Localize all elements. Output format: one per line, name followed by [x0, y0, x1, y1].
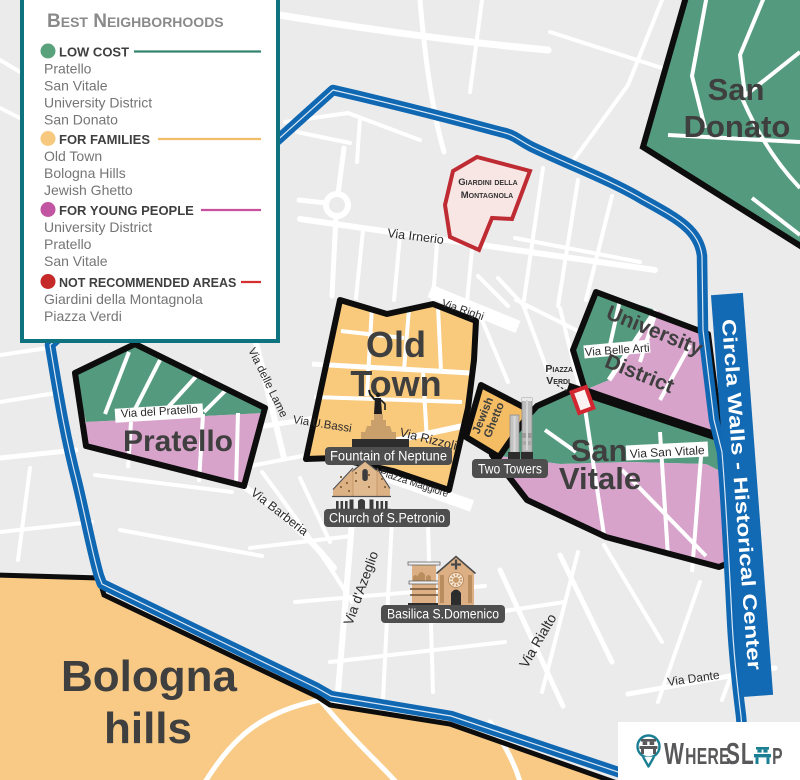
- svg-text:San Donato: San Donato: [44, 112, 118, 128]
- svg-text:San Vitale: San Vitale: [44, 253, 108, 269]
- svg-text:Church of S.Petronio: Church of S.Petronio: [329, 511, 445, 526]
- svg-text:Basilica S.Domenico: Basilica S.Domenico: [387, 606, 499, 622]
- svg-text:Piazza: Piazza: [545, 363, 573, 375]
- svg-text:Bologna: Bologna: [61, 652, 238, 701]
- svg-text:Old Town: Old Town: [44, 148, 102, 164]
- svg-text:San Vitale: San Vitale: [44, 78, 108, 94]
- svg-text:L: L: [741, 736, 754, 771]
- svg-text:hills: hills: [104, 704, 192, 753]
- svg-text:P: P: [772, 744, 782, 770]
- svg-text:FOR FAMILIES: FOR FAMILIES: [59, 132, 150, 147]
- svg-text:FOR YOUNG PEOPLE: FOR YOUNG PEOPLE: [59, 203, 194, 218]
- svg-text:W: W: [664, 736, 684, 771]
- svg-text:Fountain of Neptune: Fountain of Neptune: [330, 449, 447, 464]
- svg-text:Giardini della: Giardini della: [458, 177, 517, 188]
- svg-text:Old: Old: [366, 324, 426, 365]
- svg-text:Montagnola: Montagnola: [461, 190, 514, 201]
- svg-text:BEST NEIGHBORHOODS: BEST NEIGHBORHOODS: [47, 11, 224, 32]
- svg-text:Giardini della Montagnola: Giardini della Montagnola: [44, 291, 203, 307]
- svg-text:Bologna Hills: Bologna Hills: [44, 165, 126, 181]
- svg-text:LOW COST: LOW COST: [59, 45, 129, 60]
- svg-text:Two Towers: Two Towers: [478, 461, 542, 477]
- svg-text:University District: University District: [44, 219, 152, 235]
- svg-text:San: San: [708, 72, 765, 107]
- svg-text:University District: University District: [44, 95, 152, 111]
- svg-text:Town: Town: [350, 363, 441, 404]
- svg-text:Pratello: Pratello: [44, 61, 92, 77]
- svg-text:Donato: Donato: [684, 109, 791, 144]
- svg-text:Pratello: Pratello: [123, 425, 233, 458]
- svg-text:Jewish Ghetto: Jewish Ghetto: [44, 182, 133, 198]
- svg-text:Pratello: Pratello: [44, 236, 92, 252]
- svg-text:Vitale: Vitale: [559, 461, 641, 496]
- svg-text:Piazza Verdi: Piazza Verdi: [44, 308, 122, 324]
- svg-text:S: S: [726, 736, 740, 771]
- svg-text:HERE: HERE: [685, 744, 730, 770]
- svg-text:NOT RECOMMENDED AREAS: NOT RECOMMENDED AREAS: [59, 276, 236, 290]
